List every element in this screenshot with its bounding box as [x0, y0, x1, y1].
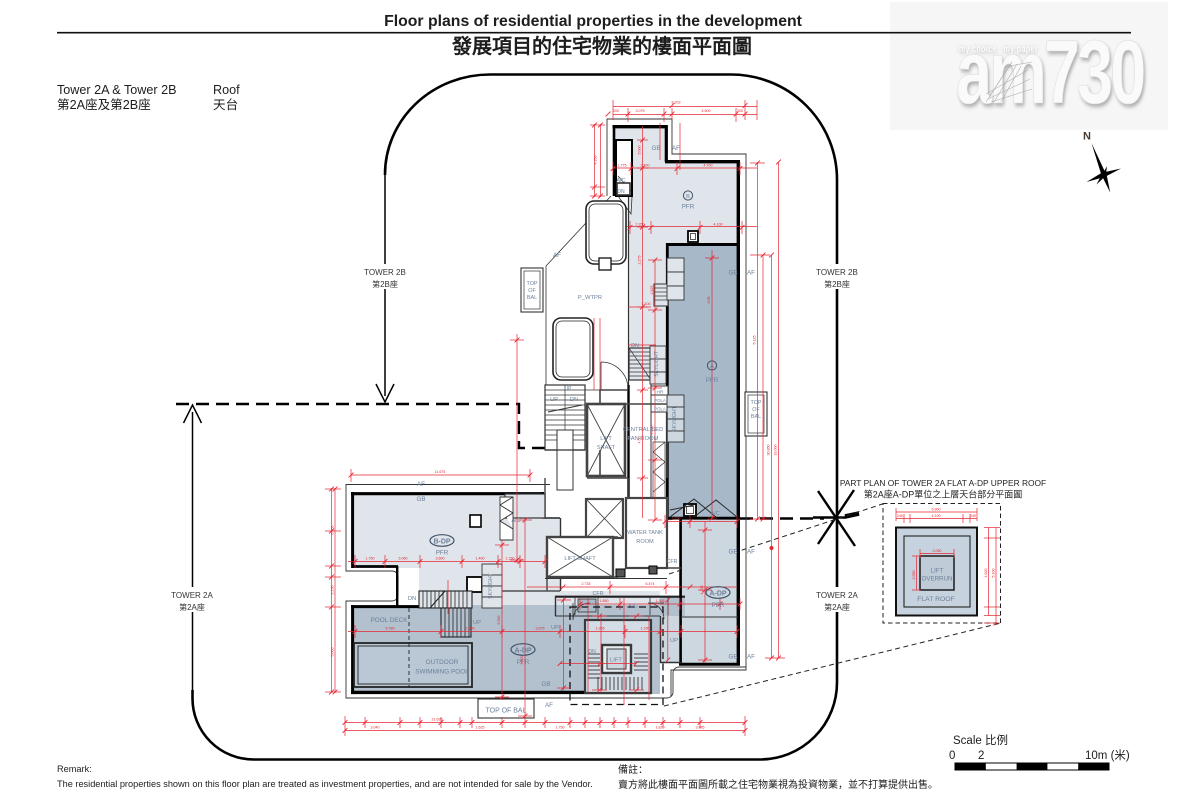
svg-text:2.350: 2.350 — [636, 223, 645, 227]
svg-text:SHAFT: SHAFT — [597, 445, 616, 451]
svg-text:1.150: 1.150 — [641, 627, 650, 631]
svg-text:21.635: 21.635 — [432, 718, 443, 722]
svg-text:DN: DN — [408, 596, 416, 602]
svg-text:GB: GB — [541, 681, 550, 688]
svg-text:賣方將此樓面平面圖所載之住宅物業視為投資物業，並不打算提供出: 賣方將此樓面平面圖所載之住宅物業視為投資物業，並不打算提供出售。 — [618, 778, 938, 791]
svg-text:5.060: 5.060 — [399, 557, 408, 561]
svg-text:2: 2 — [978, 750, 984, 762]
svg-text:0: 0 — [949, 750, 955, 762]
svg-text:2.500: 2.500 — [466, 627, 475, 631]
svg-text:9.05: 9.05 — [707, 297, 711, 304]
svg-text:1.750: 1.750 — [366, 557, 375, 561]
svg-text:1.775: 1.775 — [618, 164, 627, 168]
svg-text:6.474: 6.474 — [646, 582, 655, 586]
svg-text:N: N — [1083, 131, 1091, 143]
svg-text:my choice . my paper: my choice . my paper — [959, 43, 1038, 54]
svg-text:第2B座: 第2B座 — [824, 279, 850, 289]
svg-text:SWIMMING POOL: SWIMMING POOL — [415, 669, 469, 676]
svg-text:200: 200 — [737, 109, 743, 113]
svg-text:3.400: 3.400 — [708, 517, 717, 521]
svg-text:5.125: 5.125 — [753, 336, 757, 345]
svg-text:TOP: TOP — [751, 400, 762, 406]
svg-text:2.050: 2.050 — [912, 571, 916, 580]
svg-text:DN: DN — [570, 397, 578, 403]
svg-text:The residential properties sho: The residential properties shown on this… — [57, 779, 593, 789]
svg-text:8.203: 8.203 — [672, 101, 681, 105]
svg-text:am730: am730 — [956, 22, 1144, 123]
svg-text:PFR: PFR — [682, 204, 695, 211]
svg-text:A-DP: A-DP — [514, 648, 531, 655]
svg-text:2.050: 2.050 — [933, 549, 942, 553]
svg-text:OUTDOOR: OUTDOOR — [426, 659, 459, 666]
svg-text:FLAT ROOF: FLAT ROOF — [917, 596, 955, 603]
svg-text:備註：: 備註： — [618, 763, 648, 776]
svg-text:4.100: 4.100 — [932, 514, 941, 518]
svg-text:4.250: 4.250 — [594, 156, 598, 165]
svg-text:WATER TANK: WATER TANK — [627, 530, 663, 536]
svg-text:發展項目的住宅物業的樓面平面圖: 發展項目的住宅物業的樓面平面圖 — [451, 34, 752, 58]
svg-text:SKYLIGHT: SKYLIGHT — [488, 572, 494, 598]
svg-text:CFR: CFR — [666, 559, 677, 565]
svg-text:第2B座: 第2B座 — [372, 279, 398, 289]
svg-text:UP: UP — [473, 620, 481, 626]
svg-text:HR: HR — [657, 390, 664, 396]
svg-text:4.620: 4.620 — [984, 569, 988, 578]
svg-text:AF: AF — [747, 270, 755, 277]
svg-text:2.825: 2.825 — [650, 286, 654, 295]
svg-text:1.305: 1.305 — [596, 627, 605, 631]
svg-text:LIFT: LIFT — [931, 568, 944, 575]
svg-text:TOP OF BAL: TOP OF BAL — [486, 708, 527, 715]
svg-text:UP: UP — [551, 625, 559, 631]
svg-text:2.275: 2.275 — [638, 256, 642, 265]
svg-text:Scale 比例: Scale 比例 — [953, 733, 1008, 747]
svg-text:PART PLAN OF TOWER 2A FLAT A-D: PART PLAN OF TOWER 2A FLAT A-DP UPPER RO… — [840, 478, 1046, 488]
svg-text:1.150: 1.150 — [672, 517, 681, 521]
svg-text:GB: GB — [728, 654, 737, 661]
svg-text:4.500: 4.500 — [702, 109, 711, 113]
svg-text:LIFT SHAFT: LIFT SHAFT — [564, 556, 596, 562]
svg-text:PFR: PFR — [517, 659, 530, 666]
svg-text:A/C: A/C — [628, 604, 638, 610]
svg-text:AF: AF — [553, 252, 561, 259]
svg-text:TOP: TOP — [527, 281, 538, 287]
svg-text:CENTRALISED: CENTRALISED — [623, 427, 664, 433]
svg-text:A: A — [710, 364, 714, 370]
svg-text:TOWER 2B: TOWER 2B — [364, 268, 406, 277]
svg-text:第2A座: 第2A座 — [824, 602, 850, 612]
svg-text:SKYLIGHT: SKYLIGHT — [672, 405, 678, 431]
svg-text:36.850: 36.850 — [767, 445, 771, 456]
svg-text:PFR: PFR — [712, 602, 725, 609]
svg-text:ROOM: ROOM — [636, 539, 654, 545]
svg-text:AF: AF — [417, 481, 425, 488]
svg-text:A-DP: A-DP — [709, 591, 726, 598]
svg-text:AF: AF — [747, 549, 755, 556]
svg-text:UP: UP — [565, 386, 573, 392]
svg-text:6.250: 6.250 — [331, 526, 335, 535]
svg-text:5.100: 5.100 — [992, 569, 996, 578]
svg-text:CFR: CFR — [592, 591, 603, 597]
svg-text:5.780: 5.780 — [386, 627, 395, 631]
svg-text:4.100: 4.100 — [714, 223, 723, 227]
svg-text:GB: GB — [728, 270, 737, 277]
svg-text:1.400: 1.400 — [476, 557, 485, 561]
svg-text:UP: UP — [550, 397, 558, 403]
svg-text:1.750: 1.750 — [556, 726, 565, 730]
svg-text:BAL: BAL — [527, 295, 537, 301]
svg-text:4.235: 4.235 — [700, 586, 704, 595]
svg-text:TOWER 2A: TOWER 2A — [816, 591, 858, 600]
svg-text:GB: GB — [728, 549, 737, 556]
svg-text:Roof: Roof — [213, 83, 240, 97]
svg-text:LIFT: LIFT — [610, 658, 622, 664]
svg-text:2.735: 2.735 — [582, 582, 591, 586]
svg-text:5.000: 5.000 — [638, 146, 642, 155]
svg-text:第2A座及第2B座: 第2A座及第2B座 — [57, 98, 151, 112]
svg-text:FAN ROOM: FAN ROOM — [628, 436, 659, 442]
svg-text:BAL: BAL — [751, 414, 761, 420]
svg-text:1.365: 1.365 — [656, 599, 665, 603]
svg-text:240: 240 — [970, 514, 976, 518]
svg-text:P_WTPR: P_WTPR — [578, 295, 602, 301]
svg-text:PFR: PFR — [436, 550, 449, 557]
svg-text:1.810: 1.810 — [656, 726, 665, 730]
svg-text:1.100: 1.100 — [642, 302, 651, 306]
svg-text:第2A座: 第2A座 — [179, 602, 205, 612]
svg-text:TOWER 2B: TOWER 2B — [816, 268, 858, 277]
svg-text:1.625: 1.625 — [476, 726, 485, 730]
svg-text:OF: OF — [752, 407, 760, 413]
svg-text:Remark:: Remark: — [57, 764, 92, 774]
svg-text:A/C: A/C — [710, 511, 719, 517]
svg-text:OVERRUN: OVERRUN — [922, 576, 953, 583]
svg-text:OF: OF — [528, 288, 536, 294]
svg-text:240: 240 — [897, 514, 903, 518]
svg-text:1.850: 1.850 — [600, 599, 609, 603]
svg-text:A/C: A/C — [616, 178, 625, 184]
svg-text:DN: DN — [588, 649, 596, 655]
svg-text:10m (米): 10m (米) — [1085, 749, 1130, 762]
svg-text:SKYLIGHT: SKYLIGHT — [654, 350, 660, 376]
svg-text:天台: 天台 — [213, 98, 238, 112]
svg-text:1.150: 1.150 — [506, 557, 515, 561]
svg-text:3.075: 3.075 — [636, 109, 645, 113]
svg-text:2.250: 2.250 — [331, 586, 335, 595]
svg-text:GB: GB — [651, 145, 660, 152]
svg-text:33.000: 33.000 — [774, 445, 778, 456]
svg-text:LIFT: LIFT — [600, 436, 612, 442]
svg-text:11.675: 11.675 — [435, 470, 446, 474]
svg-text:TOWER 2A: TOWER 2A — [171, 591, 213, 600]
svg-text:200: 200 — [613, 109, 619, 113]
svg-text:DN: DN — [617, 189, 625, 195]
svg-text:AF: AF — [747, 654, 755, 661]
svg-text:3.885: 3.885 — [696, 726, 705, 730]
svg-text:AF: AF — [672, 145, 680, 152]
svg-text:4.700: 4.700 — [704, 164, 713, 168]
svg-text:Tower 2A & Tower 2B: Tower 2A & Tower 2B — [57, 83, 176, 97]
svg-text:POLA: POLA — [654, 407, 666, 412]
svg-text:第2A座A-DP單位之上層天台部分平面圖: 第2A座A-DP單位之上層天台部分平面圖 — [864, 489, 1023, 500]
svg-text:3.675: 3.675 — [536, 627, 545, 631]
svg-text:POLA: POLA — [654, 398, 666, 403]
svg-text:Floor plans of residential pro: Floor plans of residential properties in… — [384, 13, 803, 30]
svg-text:POOL DECK: POOL DECK — [370, 617, 408, 624]
svg-text:5.900: 5.900 — [932, 508, 941, 512]
svg-text:PFR: PFR — [706, 377, 719, 384]
svg-text:GB: GB — [416, 496, 425, 503]
svg-text:2.200: 2.200 — [641, 164, 650, 168]
svg-text:3.600: 3.600 — [436, 557, 445, 561]
svg-text:3.040: 3.040 — [371, 726, 380, 730]
svg-text:5.500: 5.500 — [497, 616, 501, 625]
svg-text:AF: AF — [545, 702, 553, 709]
svg-text:B: B — [686, 194, 690, 200]
svg-text:5.000: 5.000 — [331, 648, 335, 657]
svg-text:B-DP: B-DP — [433, 539, 450, 546]
svg-text:A/C: A/C — [511, 518, 520, 524]
svg-text:UP: UP — [670, 638, 678, 644]
svg-text:DN: DN — [631, 343, 639, 349]
